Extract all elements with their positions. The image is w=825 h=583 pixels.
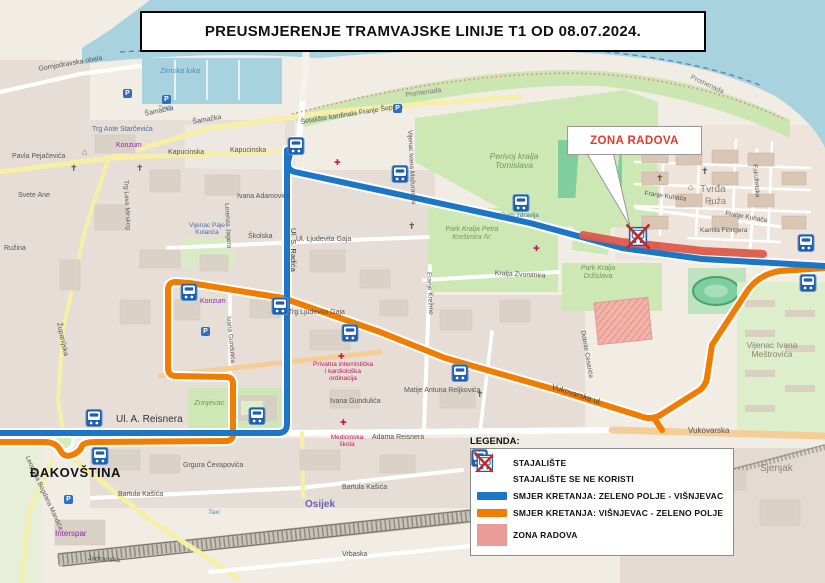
work-zone-callout: ZONA RADOVA bbox=[567, 126, 702, 155]
poi-label: Tvrđa bbox=[158, 106, 173, 113]
park-label: Perivoj kralja Tomislava bbox=[478, 152, 550, 171]
district-label: ĐAKOVŠTINA bbox=[30, 466, 121, 480]
district-label: Vijenac Ivana Meštrovića bbox=[733, 341, 811, 360]
street-label: Vukovarska bbox=[688, 427, 730, 436]
legend-row-stop-closed: STAJALIŠTE SE NE KORISTI bbox=[471, 474, 733, 484]
park-label: Zrinjevac bbox=[194, 399, 224, 407]
street-label: Vrbaska bbox=[342, 551, 367, 559]
pharmacy-icon: ✚ bbox=[338, 353, 345, 361]
street-label: Adama Reisnera bbox=[372, 434, 424, 442]
shop-label: Interspar bbox=[55, 530, 87, 539]
tram-stop-icon bbox=[92, 448, 108, 465]
pharmacy-icon: ✚ bbox=[334, 159, 341, 167]
parking-icon: P bbox=[393, 104, 402, 113]
tram-stop-icon bbox=[86, 410, 102, 427]
church-icon: ✝ bbox=[476, 390, 484, 399]
legend-heading: LEGENDA: bbox=[470, 436, 520, 447]
park-label: Park Kralja Držislava bbox=[570, 265, 626, 280]
museum-icon: ⌂ bbox=[688, 183, 693, 192]
church-icon: ✝ bbox=[408, 222, 416, 231]
square-label: Trg Ante Starčevića bbox=[92, 126, 153, 134]
parking-icon: P bbox=[64, 495, 73, 504]
church-icon: ✝ bbox=[656, 174, 664, 183]
street-label: Kapucinska bbox=[230, 147, 266, 155]
tram-stop-icon bbox=[513, 195, 529, 212]
work-zone-swatch bbox=[477, 524, 507, 546]
tram-stop-icon bbox=[452, 365, 468, 382]
street-label: Ivana Gundulića bbox=[330, 398, 381, 406]
museum-icon: ⌂ bbox=[708, 198, 713, 207]
legend-label: STAJALIŠTE SE NE KORISTI bbox=[513, 474, 634, 484]
tram-stop-icon bbox=[798, 235, 814, 252]
street-label: Bartula Kašića bbox=[118, 491, 163, 499]
street-label: Ul. S. Radića bbox=[289, 228, 297, 272]
street-label: Svete Ane bbox=[18, 192, 50, 200]
tram-stop-icon bbox=[272, 298, 288, 315]
pharmacy-icon: ✚ bbox=[340, 419, 347, 427]
street-label: Ružina bbox=[4, 245, 26, 253]
parking-icon: P bbox=[201, 327, 210, 336]
legend-label: STAJALIŠTE bbox=[513, 458, 566, 468]
shop-label: Konzum bbox=[200, 298, 226, 306]
district-label: Sjenjak bbox=[760, 463, 793, 474]
legend-row-stop: STAJALIŠTE bbox=[471, 458, 733, 468]
pharmacy-icon: ✚ bbox=[533, 245, 540, 253]
museum-icon: ⌂ bbox=[82, 148, 87, 157]
legend-label: SMJER KRETANJA: VIŠNJEVAC - ZELENO POLJE bbox=[513, 508, 723, 518]
street-label: Kapucinska bbox=[168, 149, 204, 157]
tram-stop-icon bbox=[392, 166, 408, 183]
tram-stop-icon bbox=[181, 284, 197, 301]
district-label: Tvrđa bbox=[700, 184, 726, 195]
legend-row-work-zone: ZONA RADOVA bbox=[471, 524, 733, 546]
tram-stop-icon bbox=[249, 408, 265, 425]
poi-label: Privatna internistička i kardiološka ord… bbox=[312, 361, 374, 382]
shop-label: Konzum bbox=[116, 142, 142, 150]
church-icon: ✝ bbox=[136, 164, 144, 173]
parking-icon: P bbox=[123, 89, 132, 98]
tram-stop-icon bbox=[800, 275, 816, 292]
legend-row-orange-direction: SMJER KRETANJA: VIŠNJEVAC - ZELENO POLJE bbox=[471, 508, 733, 518]
legend-label: ZONA RADOVA bbox=[513, 530, 578, 540]
museum-icon: ⌂ bbox=[654, 241, 659, 250]
park-label: Park Kralja Petra Krešimira IV. bbox=[443, 226, 501, 241]
map-title: PREUSMJERENJE TRAMVAJSKE LINIJE T1 OD 08… bbox=[140, 11, 706, 52]
legend-row-blue-direction: SMJER KRETANJA: ZELENO POLJE - VIŠNJEVAC bbox=[471, 491, 733, 501]
map-canvas: ĐAKOVŠTINA Ul. A. Reisnera Adama Reisner… bbox=[0, 0, 825, 583]
tram-stop-crossed-icon bbox=[627, 225, 650, 249]
legend: STAJALIŠTE STAJALIŠTE SE NE KORISTI SMJE… bbox=[470, 448, 734, 556]
square-label: Trg Ljudevita Gaja bbox=[288, 309, 345, 317]
map-title-text: PREUSMJERENJE TRAMVAJSKE LINIJE T1 OD 08… bbox=[205, 23, 641, 40]
poi-label: Dom zdravlja bbox=[501, 212, 539, 219]
street-label: Bartula Kašića bbox=[342, 484, 387, 492]
street-label: Matije Antuna Reljkovića bbox=[404, 387, 480, 395]
tram-stop-icon bbox=[288, 138, 304, 155]
poi-label: Taxi bbox=[208, 509, 220, 516]
legend-label: SMJER KRETANJA: ZELENO POLJE - VIŠNJEVAC bbox=[513, 491, 723, 501]
work-zone-callout-text: ZONA RADOVA bbox=[590, 135, 679, 147]
church-icon: ✝ bbox=[701, 167, 709, 176]
church-icon: ✝ bbox=[70, 164, 78, 173]
blue-route-swatch bbox=[477, 492, 507, 500]
tram-stop-icon bbox=[342, 325, 358, 342]
street-label: Ivana Adamovića bbox=[237, 193, 290, 201]
water-label: Zimska luka bbox=[160, 67, 200, 75]
parking-icon: P bbox=[162, 95, 171, 104]
orange-route-swatch bbox=[477, 509, 507, 517]
street-label: Kamila Firingera bbox=[700, 227, 747, 234]
work-zone-area bbox=[594, 297, 652, 344]
street-label: Školska bbox=[248, 233, 273, 241]
poi-label: Medicinska škola bbox=[326, 434, 368, 448]
station-label: Osijek bbox=[305, 499, 335, 510]
street-label: Pavla Pejačevića bbox=[12, 153, 65, 161]
street-label: Grgura Čevapovića bbox=[183, 462, 243, 470]
street-label: Ul. A. Reisnera bbox=[116, 414, 183, 425]
street-label: Ul. Ljudevita Gaja bbox=[296, 236, 351, 244]
